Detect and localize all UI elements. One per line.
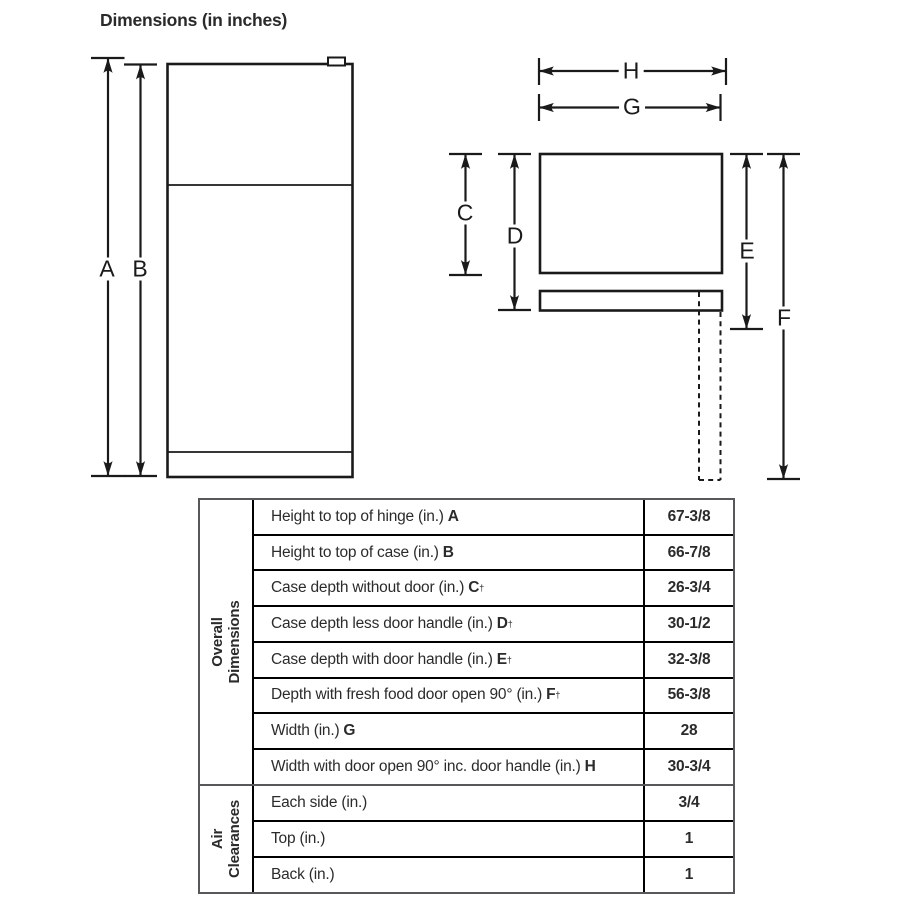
door-outline — [540, 291, 722, 311]
spec-label: Case depth with door handle (in.)E† — [254, 643, 645, 677]
table-row: Case depth less door handle (in.)D† 30-1… — [254, 607, 733, 643]
spec-value: 28 — [645, 714, 733, 748]
spec-value: 1 — [645, 858, 733, 892]
spec-value: 67-3/8 — [645, 500, 733, 534]
table-row: Height to top of hinge (in.)A 67-3/8 — [254, 500, 733, 536]
dim-label-e: E — [735, 240, 758, 263]
group-cell-overall-dimensions: Overall Dimensions — [200, 500, 254, 784]
dimensions-table: Overall Dimensions Height to top of hing… — [198, 498, 735, 894]
group-cell-air-clearances: Air Clearances — [200, 786, 254, 892]
spec-label: Width with door open 90° inc. door handl… — [254, 750, 645, 784]
table-row: Width (in.)G 28 — [254, 714, 733, 750]
group-label: Air Clearances — [209, 800, 244, 878]
fridge-front-view — [168, 58, 353, 478]
table-row: Depth with fresh food door open 90° (in.… — [254, 679, 733, 715]
table-row: Width with door open 90° inc. door handl… — [254, 750, 733, 784]
group-label: Overall Dimensions — [209, 600, 244, 683]
spec-label: Case depth without door (in.)C† — [254, 571, 645, 605]
dim-label-a: A — [95, 258, 118, 281]
dimension-diagram — [0, 0, 900, 495]
table-row: Each side (in.) 3/4 — [254, 786, 733, 822]
spec-label: Back (in.) — [254, 858, 645, 892]
table-row: Back (in.) 1 — [254, 858, 733, 892]
spec-value: 66-7/8 — [645, 536, 733, 570]
spec-value: 32-3/8 — [645, 643, 733, 677]
dim-label-g: G — [619, 96, 645, 119]
spec-label: Height to top of case (in.)B — [254, 536, 645, 570]
case-outline — [540, 154, 722, 273]
spec-label: Each side (in.) — [254, 786, 645, 820]
table-row: Top (in.) 1 — [254, 822, 733, 858]
dim-label-h: H — [619, 60, 644, 83]
table-section-overall-dimensions: Overall Dimensions Height to top of hing… — [200, 500, 733, 784]
hinge-detail — [328, 58, 345, 66]
spec-label: Case depth less door handle (in.)D† — [254, 607, 645, 641]
dim-label-d: D — [503, 225, 528, 248]
dim-label-c: C — [453, 202, 478, 225]
spec-value: 30-3/4 — [645, 750, 733, 784]
spec-value: 30-1/2 — [645, 607, 733, 641]
table-row: Height to top of case (in.)B 66-7/8 — [254, 536, 733, 572]
fridge-top-view — [540, 154, 722, 480]
dim-label-f: F — [773, 307, 795, 330]
spec-label: Top (in.) — [254, 822, 645, 856]
spec-value: 1 — [645, 822, 733, 856]
spec-value: 3/4 — [645, 786, 733, 820]
table-rows: Each side (in.) 3/4 Top (in.) 1 Back (in… — [254, 786, 733, 892]
table-rows: Height to top of hinge (in.)A 67-3/8 Hei… — [254, 500, 733, 784]
spec-value: 26-3/4 — [645, 571, 733, 605]
table-row: Case depth without door (in.)C† 26-3/4 — [254, 571, 733, 607]
table-row: Case depth with door handle (in.)E† 32-3… — [254, 643, 733, 679]
spec-value: 56-3/8 — [645, 679, 733, 713]
dim-label-b: B — [128, 258, 151, 281]
table-section-air-clearances: Air Clearances Each side (in.) 3/4 Top (… — [200, 784, 733, 892]
spec-label: Height to top of hinge (in.)A — [254, 500, 645, 534]
dimensions-spec-page: Dimensions (in inches) — [0, 0, 900, 900]
spec-label: Depth with fresh food door open 90° (in.… — [254, 679, 645, 713]
spec-label: Width (in.)G — [254, 714, 645, 748]
door-handle-swing-dashed — [699, 292, 721, 480]
